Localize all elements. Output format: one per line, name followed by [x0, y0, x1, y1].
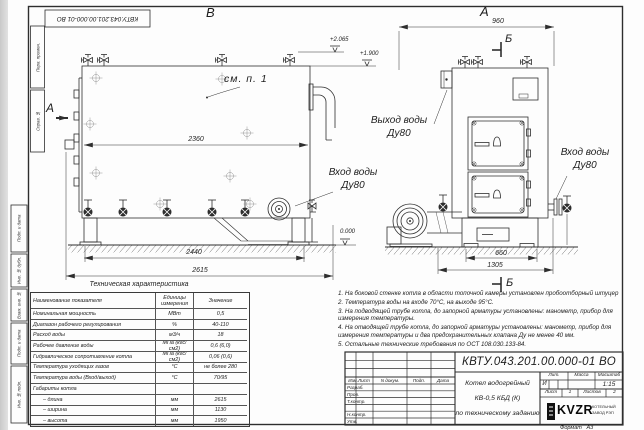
spec-row-unit: МПа (кгс/см2) — [155, 340, 193, 351]
water-outlet-flange — [441, 71, 452, 88]
front-view-label: В — [206, 6, 215, 20]
spec-row-value: 40-110 — [193, 319, 247, 330]
section-a-label: А — [46, 102, 54, 115]
top-valve-icon — [216, 55, 227, 67]
spec-row-name: – длина — [31, 394, 155, 405]
top-valve-icon — [472, 57, 483, 69]
col-header-izm: Изм.Лист — [345, 378, 373, 385]
spec-header-unit: Единицы измерения — [155, 293, 193, 308]
spec-header-name: Наименование показателя — [31, 293, 155, 308]
inlet-label-side-line1: Вход воды — [552, 147, 618, 158]
spec-row-value: 2615 — [193, 394, 247, 405]
sheets-label: Листов — [578, 390, 606, 397]
margin-field-sprav-no: Справ. № — [31, 90, 45, 152]
spec-row-value: 70/95 — [193, 372, 247, 383]
drawing-sheet: КВТУ.043.201.00.000-01 ВО Перв. примен. … — [0, 0, 644, 430]
spec-row-value: 18 — [193, 329, 247, 340]
outlet-label-line2: Ду80 — [378, 128, 420, 139]
spec-table-title: Техническая характеристика — [30, 281, 248, 289]
spec-row-value: 0,6 (6,0) — [193, 340, 247, 351]
dim-960: 960 — [468, 18, 528, 26]
spec-row-name: Диапазон рабочего регулирования — [31, 319, 155, 330]
spec-row-unit: МПа (кгс/см2) — [155, 351, 193, 362]
col-header-date: Дата — [431, 378, 455, 385]
top-valve-icon — [82, 55, 93, 67]
note-item: 3. На подводящей трубе котла, до запорно… — [338, 308, 623, 324]
bottom-valve-icon — [241, 200, 250, 217]
note-item: 5. Остальные технические требования по О… — [338, 341, 623, 349]
product-name-line3: по техническому заданию — [456, 410, 540, 417]
chimney-outlet — [309, 84, 335, 140]
dim-2615: 2615 — [170, 267, 230, 275]
elevation-0000: 0.000 — [340, 229, 355, 236]
spec-row-name: Габариты котла — [31, 383, 155, 394]
scale-value: 1:15 — [595, 380, 623, 389]
bottom-valve-icon — [119, 200, 128, 217]
scale-header: Масштаб — [595, 373, 623, 380]
lower-door — [468, 172, 531, 217]
spec-row-unit: мм — [155, 405, 193, 416]
spec-row-name: – ширина — [31, 405, 155, 416]
top-valve-icon — [459, 57, 470, 69]
spec-header-value: Значение — [193, 293, 247, 308]
upper-door — [468, 117, 531, 170]
inlet-label-front-line1: Вход воды — [322, 167, 384, 178]
outlet-label-line1: Выход воды — [364, 115, 434, 126]
elevation-1900: +1.900 — [360, 51, 379, 58]
spec-row-unit: м3/ч — [155, 329, 193, 340]
duct-valve-icon — [439, 195, 448, 212]
mass-header: Масса — [568, 373, 595, 380]
logo-subtext-line1: КОТЕЛЬНЫЙ — [592, 405, 616, 409]
bottom-valve-icon — [163, 200, 172, 217]
sheets-value: 2 — [606, 390, 623, 397]
title-block-doc-number: КВТУ.043.201.00.000-01 ВО — [455, 353, 623, 372]
spec-row-value: не более 280 — [193, 362, 247, 373]
section-b-bottom-label: Б — [506, 277, 513, 289]
spec-row-unit: % — [155, 319, 193, 330]
side-inlet-valve — [548, 196, 572, 245]
spec-row-name: Рабочее давление воды — [31, 340, 155, 351]
format-label: Формат — [560, 425, 582, 430]
spec-row-value: 0,06 (0,6) — [193, 351, 247, 362]
margin-field-inv-podl: Инв. № подл. — [11, 366, 27, 423]
row-label-nkontr: Н.контр. — [347, 412, 366, 417]
front-view-linework — [56, 46, 376, 280]
margin-field-podp-data: Подп. и дата — [11, 205, 27, 252]
margin-field-inv-dubl: Инв. № дубл. — [11, 254, 27, 287]
bottom-valve-icon — [208, 200, 217, 217]
format-value: А3 — [586, 425, 593, 430]
spec-row-value — [193, 383, 247, 394]
kvzr-logo: KVZR — [557, 404, 593, 418]
note-item: 2. Температура воды на входе 70°С, на вы… — [338, 299, 623, 307]
drain-tap — [306, 200, 318, 242]
top-valve-icon — [521, 57, 532, 69]
margin-field-perv-primen: Перв. примен. — [31, 26, 45, 88]
spec-row-value: 1130 — [193, 405, 247, 416]
spec-row-unit: мм — [155, 394, 193, 405]
technical-notes: 1. На боковой стенке котла в области топ… — [338, 290, 623, 349]
row-label-razrab: Разраб. — [347, 385, 364, 390]
logo-subtext-line2: ЗАВОД РЭП — [592, 411, 614, 415]
spec-row-name: Расход воды — [31, 329, 155, 340]
col-header-sign: Подп. — [407, 378, 431, 385]
lit-value: И — [540, 381, 549, 389]
row-label-tkontr: Т.контр. — [347, 399, 366, 404]
spec-row-unit: °С — [155, 372, 193, 383]
dim-660: 660 — [471, 250, 531, 258]
inlet-label-side-line2: Ду80 — [564, 160, 606, 171]
spec-row-unit: МВт — [155, 308, 193, 319]
top-valve-icon — [98, 55, 109, 67]
spec-row-value: 1950 — [193, 415, 247, 426]
spec-row-name: Номинальная мощность — [31, 308, 155, 319]
water-inlet-flange — [268, 198, 290, 220]
sheet-label: Лист — [540, 390, 562, 397]
bottom-valve-icon — [84, 200, 93, 217]
format-note: Формат А3 — [560, 425, 630, 430]
row-label-prov: Пров. — [347, 392, 359, 397]
dim-2440: 2440 — [164, 249, 224, 257]
see-note-callout: см. п. 1 — [224, 74, 268, 86]
margin-field-podp-data2: Подп. и дата — [11, 323, 27, 364]
spec-row-unit: мм — [155, 415, 193, 426]
blower-fan — [387, 204, 432, 247]
spec-row-name: Температура уходящих газов — [31, 362, 155, 373]
spec-row-name: – высота — [31, 415, 155, 426]
spec-row-unit: °С — [155, 362, 193, 373]
product-name-line1: Котел водогрейный — [465, 380, 530, 387]
note-item: 4. На отводящей трубе котла, до запорной… — [338, 324, 623, 340]
row-label-utv: Утв. — [347, 419, 357, 424]
inlet-label-front-line2: Ду80 — [332, 180, 374, 191]
note-item: 1. На боковой стенке котла в области топ… — [338, 290, 623, 298]
dim-1305: 1305 — [465, 262, 525, 270]
spec-row-name: Гидравлическое сопротивление котла — [31, 351, 155, 362]
col-header-doc: N докум. — [373, 378, 407, 385]
elevation-2065: +2.065 — [330, 37, 349, 44]
top-valve-icon — [284, 55, 295, 67]
spec-row-name: Температура воды (Вход/выход) — [31, 372, 155, 383]
top-stamp-doc-number: КВТУ.043.201.00.000-01 ВО — [45, 10, 150, 27]
sheet-value: 1 — [562, 390, 578, 397]
section-b-top-label: Б — [505, 33, 512, 45]
spec-table: Наименование показателя Единицы измерени… — [30, 292, 250, 427]
margin-field-vzam-inv: Взам. инв. № — [11, 289, 27, 321]
title-block-product-name: Котел водогрейный КВ-0,5 КБД (К) по техн… — [455, 372, 540, 425]
spec-row-value: 0,5 — [193, 308, 247, 319]
spec-row-unit — [155, 383, 193, 394]
product-name-line2: КВ-0,5 КБД (К) — [475, 395, 521, 402]
lit-header: Лит. — [540, 373, 568, 380]
dim-2360: 2360 — [166, 136, 226, 144]
